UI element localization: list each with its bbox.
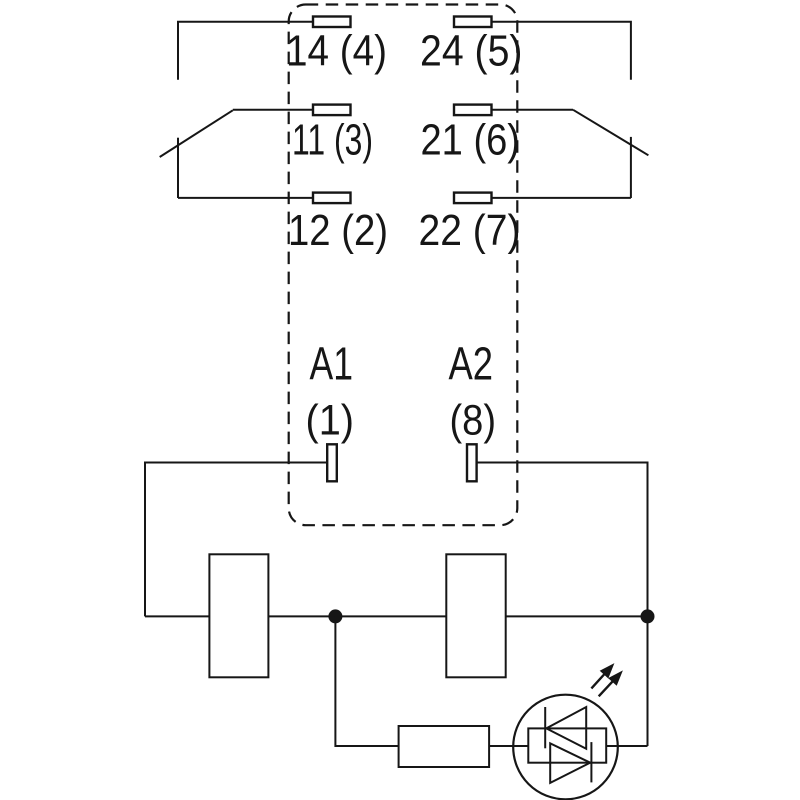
svg-text:A2: A2 [449, 338, 494, 390]
svg-text:(1): (1) [306, 397, 355, 445]
svg-text:11 (3): 11 (3) [292, 116, 373, 165]
svg-text:(8): (8) [450, 397, 497, 445]
svg-text:21 (6): 21 (6) [421, 116, 521, 165]
svg-text:24 (5): 24 (5) [420, 27, 523, 76]
svg-text:12 (2): 12 (2) [288, 206, 388, 255]
svg-text:A1: A1 [310, 338, 354, 390]
svg-text:14 (4): 14 (4) [286, 27, 387, 76]
svg-text:22 (7): 22 (7) [419, 206, 521, 255]
